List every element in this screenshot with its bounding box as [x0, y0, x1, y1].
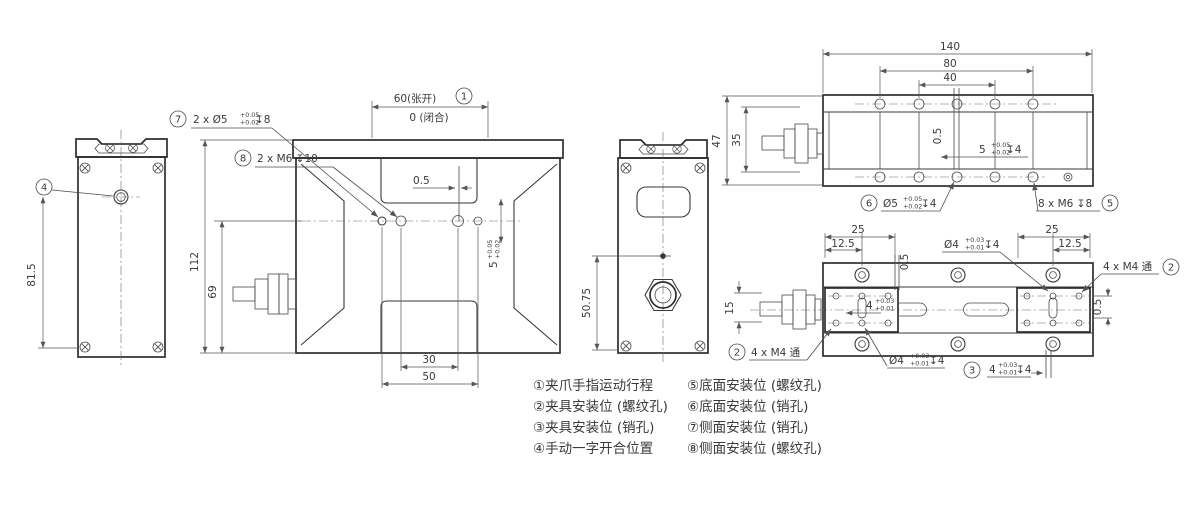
svg-text:Ø4: Ø4	[944, 239, 959, 251]
svg-text:↧4: ↧4	[984, 239, 1000, 251]
center-slot-left	[898, 303, 927, 316]
legend-item-7: ⑦侧面安装位 (销孔)	[687, 420, 808, 436]
svg-text:4: 4	[866, 300, 873, 312]
dim-stroke-open: 60(张开)	[394, 93, 437, 105]
svg-text:+0.03: +0.03	[910, 353, 929, 360]
label-pin-top: Ø4 +0.03 +0.01 ↧4	[942, 237, 1048, 291]
svg-text:+0.03: +0.03	[998, 362, 1017, 369]
label-thread-left: 2 4 x M4 通	[729, 329, 831, 360]
label-pin-spacing: 3 4 +0.03 +0.01 ↧4	[964, 350, 1051, 378]
callout-6: 6	[866, 199, 872, 210]
svg-text:4 x M4 通: 4 x M4 通	[1103, 261, 1153, 273]
label-bottom-thread-holes: 8 x M6 ↧8 5	[1034, 183, 1118, 211]
legend-item-8: ⑧侧面安装位 (螺纹孔)	[687, 441, 822, 457]
label-thread-right: 4 x M4 通 2	[1082, 259, 1179, 292]
svg-text:+0.02: +0.02	[903, 204, 922, 211]
legend-item-5: ⑤底面安装位 (螺纹孔)	[687, 378, 822, 394]
dim-140: 140	[940, 41, 960, 53]
gripper-technical-drawing: 4 81.5 60(张开) 1 0 (闭合)	[0, 0, 1200, 508]
thread-hole-label: 2 x M6 ↧10	[257, 153, 318, 165]
svg-text:4: 4	[989, 364, 996, 376]
dim-12-5-left: 12.5	[831, 238, 854, 250]
label-pin-bottom: Ø4 +0.03 +0.01 ↧4	[865, 328, 945, 368]
svg-text:Ø4: Ø4	[889, 355, 904, 367]
dim-112: 112	[189, 252, 201, 272]
pin-hole-label: 2 x Ø5	[193, 114, 228, 126]
engineering-drawing-page: 4 81.5 60(张开) 1 0 (闭合)	[0, 0, 1200, 508]
label-side-thread-holes: 8 2 x M6 ↧10	[235, 150, 397, 217]
callout-1: 1	[461, 92, 467, 103]
svg-text:↧4: ↧4	[921, 198, 937, 210]
svg-text:+0.05: +0.05	[903, 196, 922, 203]
svg-text:5: 5	[979, 144, 986, 156]
svg-text:+0.01: +0.01	[875, 306, 894, 313]
svg-text:4 x M4 通: 4 x M4 通	[751, 347, 801, 359]
left-chamfer-panel	[301, 164, 344, 345]
callout-7: 7	[175, 115, 181, 126]
end-view: 50.75	[581, 132, 708, 362]
svg-text:+0.03: +0.03	[965, 237, 984, 244]
cable-gland-bottom	[760, 290, 821, 329]
svg-text:+0.05: +0.05	[487, 240, 494, 259]
svg-text:↧4: ↧4	[1006, 144, 1022, 156]
dim-pitch-5-side: 5 +0.05 +0.02 ↧4	[976, 142, 1028, 157]
dim-12-5-right: 12.5	[1058, 238, 1081, 250]
svg-text:+0.03: +0.03	[875, 298, 894, 305]
side-window-slot	[637, 187, 690, 217]
dim-47: 47	[711, 134, 723, 147]
callout-8: 8	[240, 154, 246, 165]
cable-gland-side	[762, 124, 823, 163]
dim-offset-front: 0.5	[413, 175, 430, 187]
front-view: 60(张开) 1 0 (闭合) 7 2 x Ø5 +0.05 +0.02 ↧8 …	[170, 88, 563, 388]
callout-3: 3	[969, 366, 975, 377]
legend-item-3: ③夹具安装位 (销孔)	[533, 420, 654, 436]
svg-text:+0.01: +0.01	[965, 245, 984, 252]
dim-80: 80	[943, 58, 956, 70]
svg-text:+0.02: +0.02	[495, 240, 502, 259]
svg-text:↧4: ↧4	[929, 355, 945, 367]
cable-gland-front	[233, 274, 296, 314]
dim-0-5-right: 0.5	[1092, 299, 1104, 316]
dim-offset-side: 0.5	[932, 128, 944, 145]
svg-text:Ø5: Ø5	[883, 198, 898, 210]
pin-depth: ↧8	[255, 114, 270, 126]
center-slot-right	[964, 303, 1009, 316]
callout-5: 5	[1107, 199, 1113, 210]
legend-item-1: ①夹爪手指运动行程	[533, 378, 653, 394]
svg-text:5: 5	[488, 261, 500, 268]
dim-81-5: 81.5	[26, 263, 38, 286]
index-dot	[655, 253, 671, 259]
dim-30: 30	[422, 354, 435, 366]
dim-0-5-left: 0.5	[899, 254, 911, 271]
right-chamfer-panel	[514, 164, 557, 345]
dim-40: 40	[943, 72, 956, 84]
dim-jaw-4: 4 +0.03 +0.01	[846, 298, 894, 313]
dim-25-left: 25	[851, 224, 864, 236]
legend: ①夹爪手指运动行程 ②夹具安装位 (螺纹孔) ③夹具安装位 (销孔) ④手动一字…	[533, 378, 822, 457]
dim-50-75: 50.75	[581, 288, 593, 318]
dim-35: 35	[731, 133, 743, 146]
left-side-view: 4 81.5	[26, 130, 167, 365]
dim-25-right: 25	[1045, 224, 1058, 236]
dim-69: 69	[207, 285, 219, 298]
svg-text:8 x M6 ↧8: 8 x M6 ↧8	[1038, 198, 1092, 210]
top-side-view: 140 80 40 47 35 0.5 5 +0.05 +0.02 ↧4 6 Ø…	[711, 41, 1118, 211]
callout-2-left: 2	[734, 348, 740, 359]
svg-text:+0.01: +0.01	[910, 361, 929, 368]
legend-item-6: ⑥底面安装位 (销孔)	[687, 399, 808, 415]
dim-pitch-5-front: 5 +0.05 +0.02	[487, 240, 502, 268]
dim-stroke-closed: 0 (闭合)	[409, 111, 448, 124]
right-jaw-holes	[1024, 293, 1082, 326]
callout-2-right: 2	[1168, 263, 1174, 274]
legend-item-2: ②夹具安装位 (螺纹孔)	[533, 399, 668, 415]
svg-text:+0.01: +0.01	[998, 370, 1017, 377]
svg-text:↧4: ↧4	[1016, 364, 1032, 376]
callout-4: 4	[41, 183, 47, 194]
bottom-view: 25 12.5 0.5 Ø4 +0.03 +0.01 ↧4 25 12.5 4 …	[724, 224, 1179, 378]
legend-item-4: ④手动一字开合位置	[533, 441, 653, 457]
dim-15: 15	[724, 301, 736, 314]
dim-50: 50	[422, 371, 435, 383]
